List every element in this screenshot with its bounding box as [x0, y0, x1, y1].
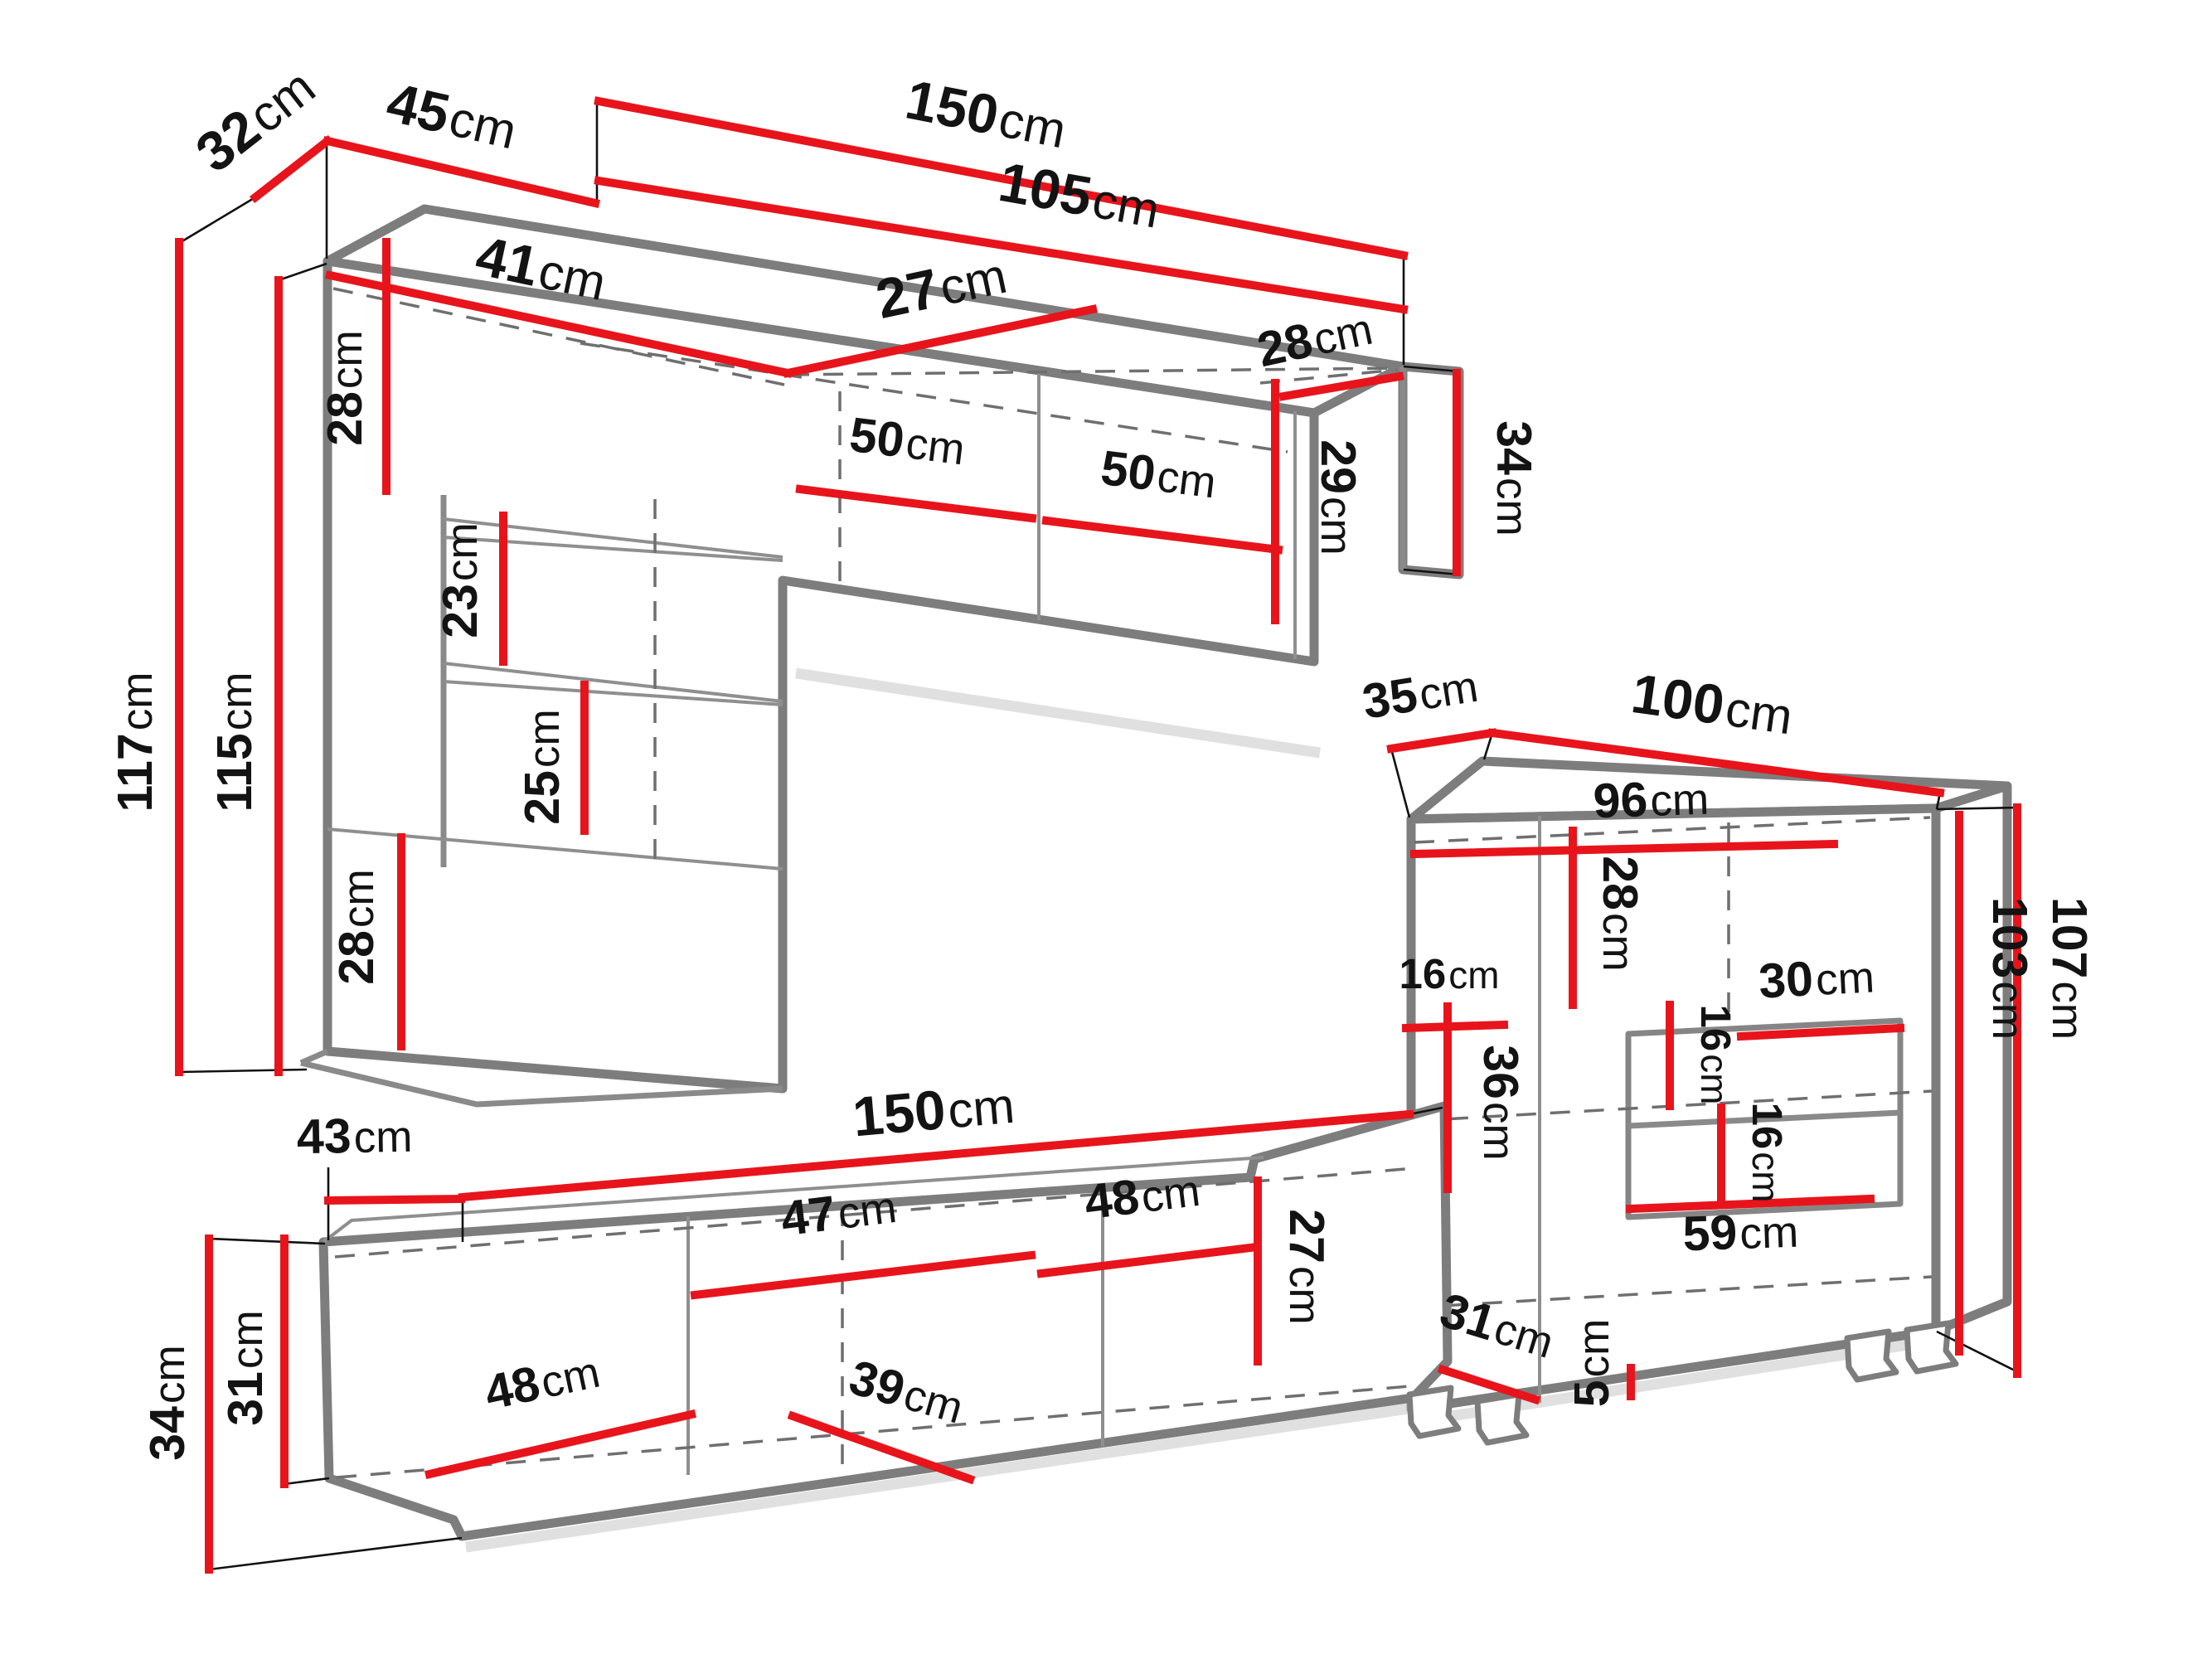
furniture-dimension-diagram: 32cm 45cm 150cm 105cm 41cm 27cm 28cm 23c…: [0, 0, 2212, 1659]
dimension-line-43: [328, 1199, 461, 1201]
dim-label-28cm-column-top: 28cm: [318, 330, 372, 445]
dim-label-43cm: 43cm: [296, 1108, 413, 1164]
dim-label-34cm-end: 34cm: [1487, 420, 1541, 536]
extension-line: [209, 1538, 462, 1569]
extension-line: [279, 264, 327, 280]
dim-label-28cm-column-bottom: 28cm: [329, 869, 384, 984]
dim-label-96cm: 96cm: [1592, 770, 1710, 829]
extension-line: [1391, 749, 1409, 817]
dim-label-31cm: 31cm: [218, 1310, 273, 1425]
dimension-tick-16: [1406, 1025, 1504, 1028]
dim-label-100cm: 100cm: [1627, 662, 1797, 746]
front-face-outline: [323, 1106, 1448, 1536]
dim-label-150cm: 150cm: [900, 68, 1071, 160]
diagram-canvas: 32cm 45cm 150cm 105cm 41cm 27cm 28cm 23c…: [0, 0, 2212, 1659]
extension-line: [284, 1478, 329, 1484]
dim-label-32cm: 32cm: [185, 55, 327, 184]
dim-label-103cm: 103cm: [1982, 897, 2037, 1040]
dim-label-16cm-upper: 16cm: [1692, 1005, 1739, 1105]
extension-line: [179, 1070, 307, 1072]
cabinet-leg: [1907, 1323, 1956, 1371]
right-end-panel: [1403, 366, 1459, 575]
cabinet-leg: [1409, 1388, 1458, 1436]
dim-label-28cm: 28cm: [1593, 856, 1647, 971]
cabinet-leg: [1477, 1395, 1526, 1443]
cabinet-shadow: [796, 673, 1320, 753]
dim-label-45cm: 45cm: [381, 71, 523, 162]
dim-label-34cm: 34cm: [140, 1345, 195, 1460]
cabinet-leg: [1847, 1332, 1896, 1380]
dim-label-36cm: 36cm: [1473, 1045, 1528, 1160]
side-face: [1936, 786, 2007, 1331]
dim-label-107cm: 107cm: [2042, 897, 2097, 1040]
extension-line: [209, 1239, 325, 1244]
dim-label-16cm-lower: 16cm: [1744, 1103, 1791, 1203]
dim-label-59cm: 59cm: [1681, 1203, 1799, 1262]
dim-label-25cm: 25cm: [515, 709, 570, 824]
dim-label-35cm: 35cm: [1359, 657, 1482, 730]
dim-label-115cm: 115cm: [207, 672, 262, 813]
extension-line: [181, 197, 255, 242]
dim-label-30cm: 30cm: [1758, 948, 1876, 1008]
dimension-line-35: [1391, 733, 1492, 749]
tv-stand-drawing: [323, 1106, 1448, 1547]
dim-label-29cm: 29cm: [1311, 439, 1366, 555]
dim-label-27cm: 27cm: [1279, 1209, 1334, 1324]
dim-label-16cm-left: 16cm: [1399, 950, 1500, 997]
dim-label-105cm: 105cm: [994, 151, 1164, 240]
dim-label-5cm: 5cm: [1564, 1319, 1619, 1408]
dim-label-117cm: 117cm: [108, 672, 163, 813]
dim-label-23cm: 23cm: [433, 522, 488, 638]
dim-label-150cm: 150cm: [851, 1073, 1017, 1149]
dimension-line-45: [327, 141, 595, 203]
